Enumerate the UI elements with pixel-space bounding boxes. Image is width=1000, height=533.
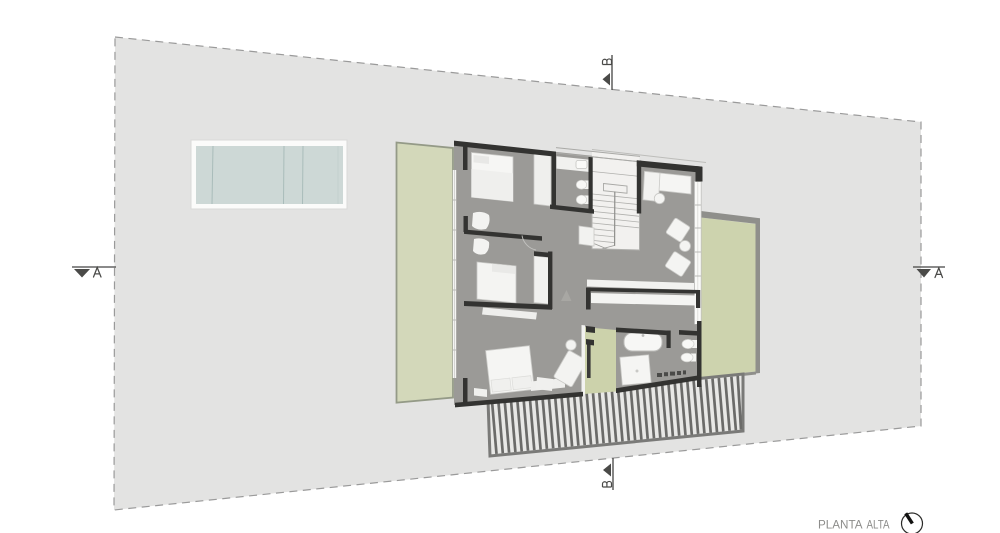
svg-text:PLANTA: PLANTA [818, 518, 863, 532]
svg-text:ALTA: ALTA [867, 518, 890, 532]
